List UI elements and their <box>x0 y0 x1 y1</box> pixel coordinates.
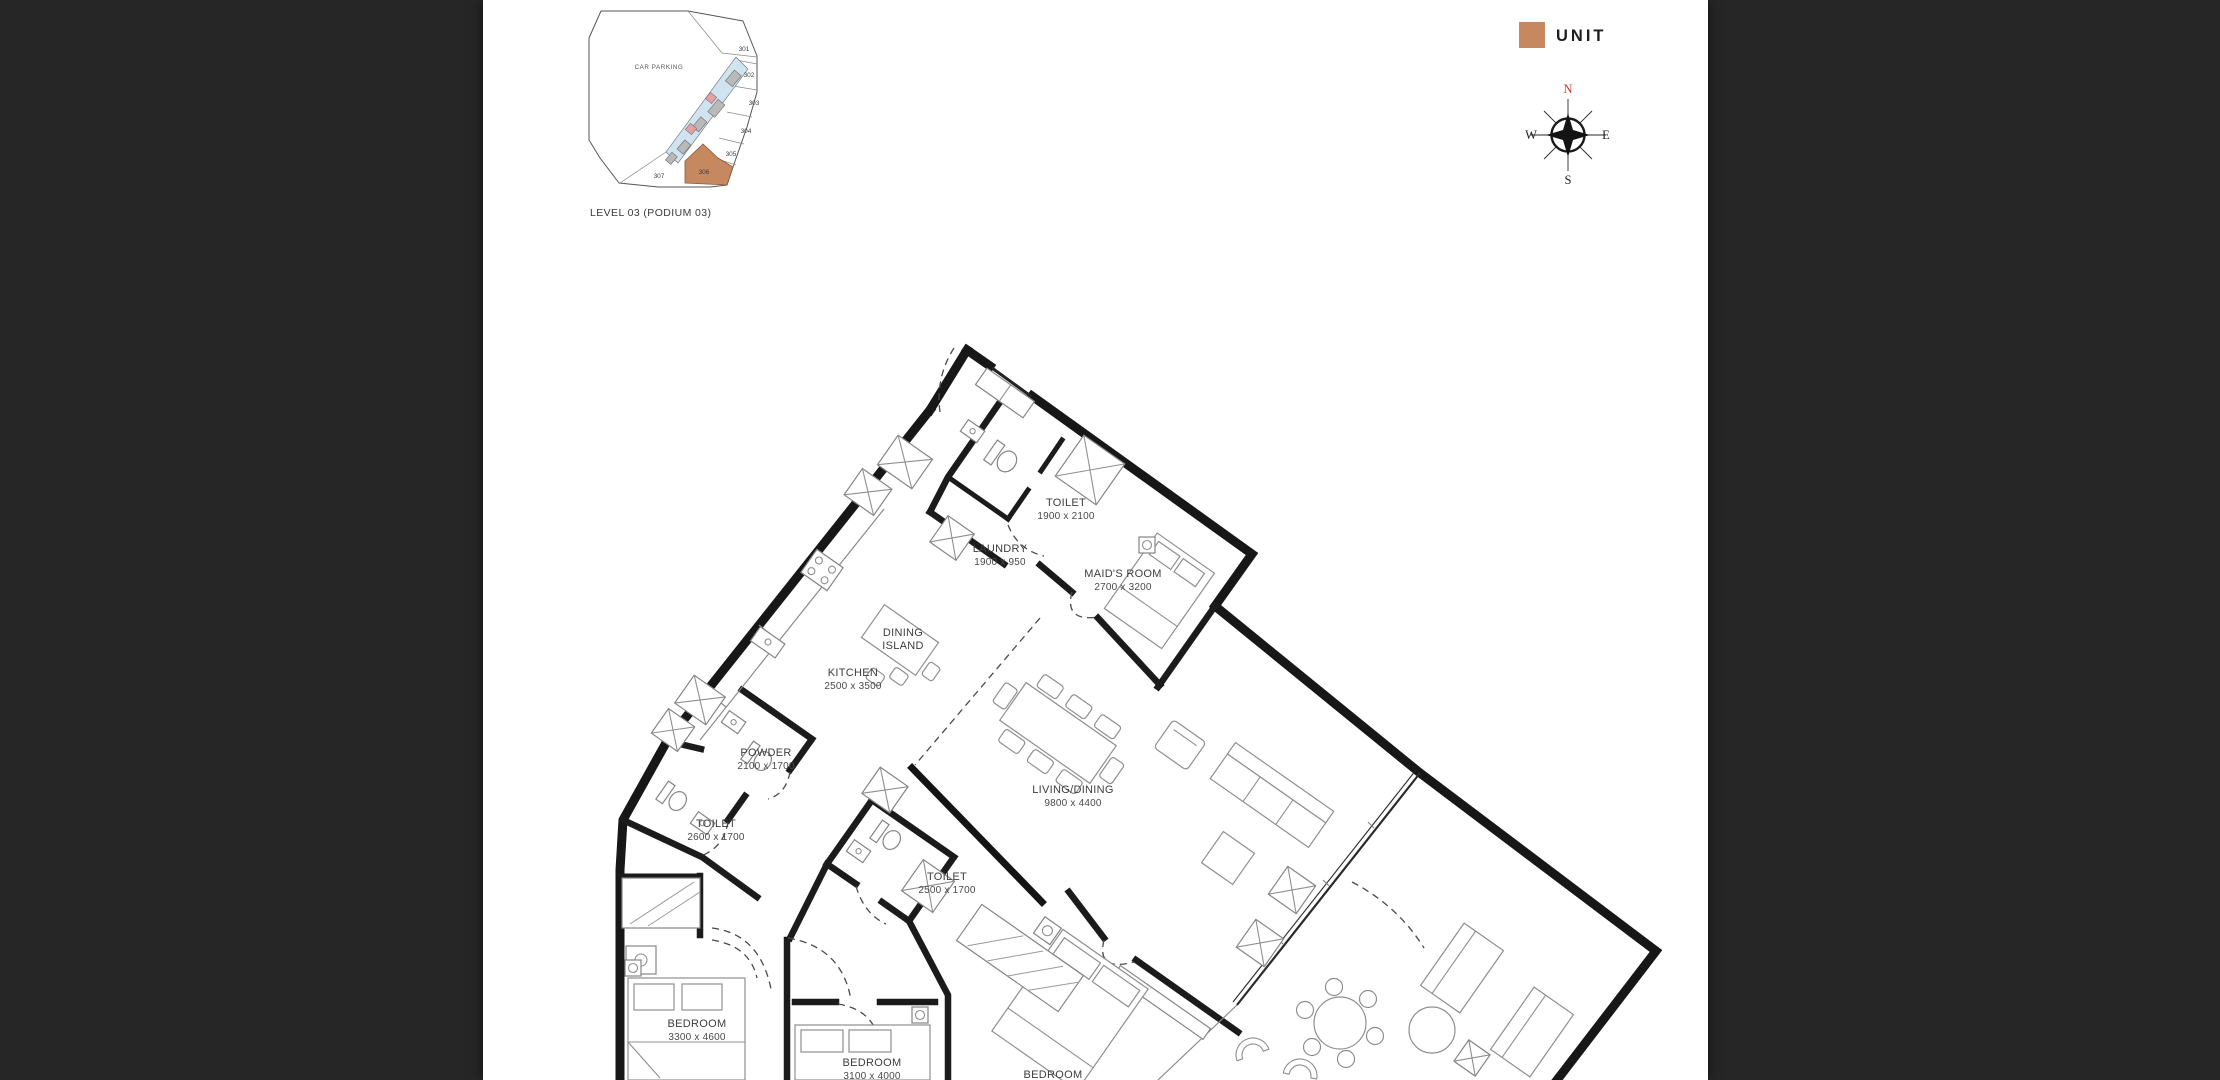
outdoor-sofa <box>1421 923 1504 1013</box>
room-label: KITCHEN <box>828 667 878 679</box>
unit-legend-label: UNIT <box>1556 27 1607 45</box>
room-label: TOILET <box>927 871 967 883</box>
compass-south-label: S <box>1565 173 1572 187</box>
wardrobe <box>622 878 700 928</box>
compass-west-label: W <box>1525 128 1537 142</box>
compass-rose-icon: N W E S <box>1525 82 1610 187</box>
keyplan-unit-number-highlighted: 306 <box>699 169 710 176</box>
washing-machine <box>930 516 975 561</box>
unit-legend-swatch <box>1519 22 1545 48</box>
room-label: BEDROOM <box>668 1018 727 1030</box>
room-dims: 2100 x 1700 <box>737 761 794 772</box>
maid-shower <box>1055 435 1125 505</box>
keyplan-divider <box>727 112 752 117</box>
room-dims: 2500 x 3500 <box>824 681 881 692</box>
planter <box>1409 1007 1455 1053</box>
keyplan-minimap: CAR PARKING 301 302 303 304 305 306 307 … <box>589 11 760 219</box>
room-label: POWDER <box>740 747 791 759</box>
keyplan-divider <box>733 86 757 90</box>
unit-legend: UNIT <box>1519 22 1607 48</box>
bed <box>626 946 745 1080</box>
room-label: LAUNDRY <box>973 543 1028 555</box>
level-label: LEVEL 03 (PODIUM 03) <box>590 207 711 219</box>
keyplan-unit-number: 302 <box>744 72 755 79</box>
room-dims: 1900 x 2100 <box>1037 511 1094 522</box>
dining-island <box>844 605 953 711</box>
room-label: BEDROOM <box>843 1057 902 1069</box>
keyplan-car-parking-label: CAR PARKING <box>635 64 684 71</box>
keyplan-unit-number: 304 <box>741 128 752 135</box>
outdoor-sofa <box>1491 987 1574 1077</box>
room-label: BEDROOM <box>1024 1069 1083 1080</box>
sofa <box>1210 743 1334 848</box>
floorplan-graphics: CAR PARKING 301 302 303 304 305 306 307 … <box>0 0 2220 1080</box>
terrace-table <box>1454 1040 1490 1076</box>
room-label: ISLAND <box>882 640 924 652</box>
compass-east-label: E <box>1602 128 1610 142</box>
room-label: TOILET <box>696 818 736 830</box>
room-dims: 3100 x 4000 <box>843 1071 900 1080</box>
room-dims: 9800 x 4400 <box>1044 798 1101 809</box>
room-dims: 3300 x 4600 <box>668 1032 725 1043</box>
keyplan-unit-number: 303 <box>749 100 760 107</box>
keyplan-unit-number: 307 <box>654 173 665 180</box>
keyplan-unit-number: 301 <box>739 46 750 53</box>
side-table <box>1236 919 1283 966</box>
room-label: TOILET <box>1046 497 1086 509</box>
keyplan-divider <box>719 138 744 144</box>
room-dims: 2500 x 1700 <box>918 885 975 896</box>
viewer-stage: CAR PARKING 301 302 303 304 305 306 307 … <box>0 0 2220 1080</box>
room-dims: 2700 x 3200 <box>1094 582 1151 593</box>
stove <box>801 549 843 590</box>
coffee-table <box>1202 832 1255 885</box>
room-label: LIVING/DINING <box>1032 784 1114 796</box>
lounge-chair <box>1231 1033 1269 1061</box>
room-dims: 2600 x 1700 <box>687 832 744 843</box>
keyplan-unit-number: 305 <box>726 151 737 158</box>
room-label: DINING <box>883 627 923 639</box>
lounge-chair <box>1283 1056 1319 1079</box>
compass-north-label: N <box>1563 82 1572 96</box>
room-label: MAID'S ROOM <box>1084 568 1162 580</box>
sanitary-fixtures <box>656 420 1021 863</box>
room-dims: 1900 x 950 <box>974 557 1026 568</box>
armchair <box>1154 720 1206 771</box>
unit-floorplan: TOILET 1900 x 2100 LAUNDRY 1900 x 950 MA… <box>620 348 1656 1080</box>
